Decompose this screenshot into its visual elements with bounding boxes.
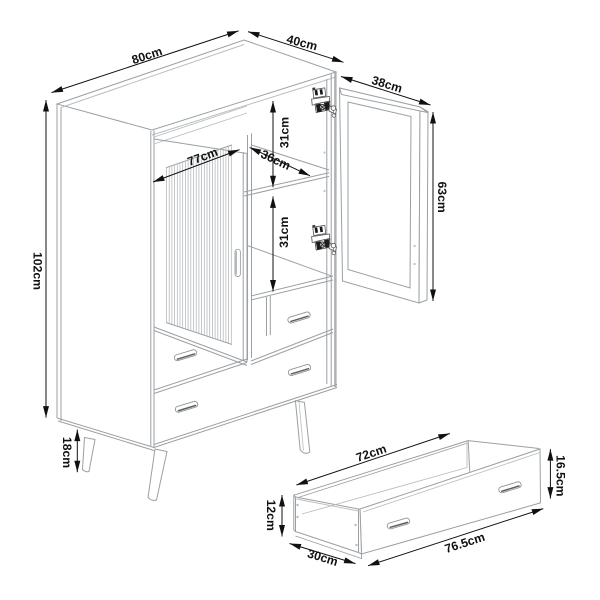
svg-text:63cm: 63cm	[435, 182, 449, 213]
svg-text:16.5cm: 16.5cm	[554, 455, 568, 496]
svg-text:31cm: 31cm	[277, 217, 291, 248]
svg-text:18cm: 18cm	[60, 437, 74, 468]
svg-text:102cm: 102cm	[30, 252, 44, 290]
svg-text:31cm: 31cm	[278, 117, 292, 148]
svg-text:12cm: 12cm	[264, 500, 278, 531]
